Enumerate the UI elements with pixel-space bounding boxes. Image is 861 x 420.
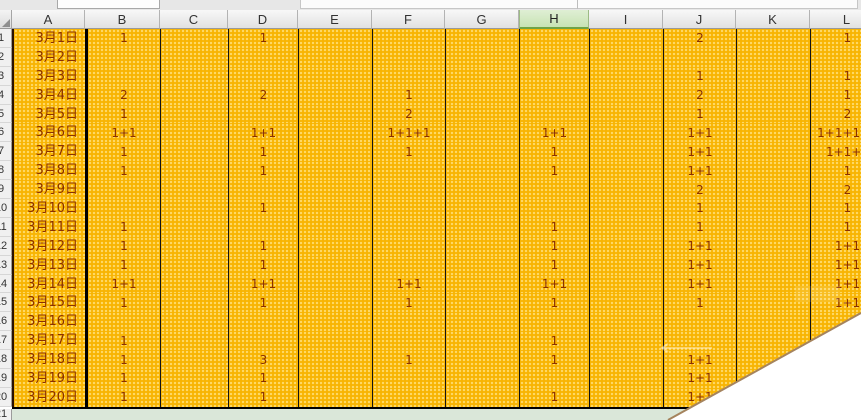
cell-E10[interactable] xyxy=(298,199,372,218)
cell-H1[interactable] xyxy=(519,29,589,48)
cell-I5[interactable] xyxy=(589,105,663,124)
cell-B1[interactable]: 1 xyxy=(85,29,160,48)
cell-G14[interactable] xyxy=(445,275,519,294)
sheet-row-12: 123月12日1111+11+1 xyxy=(0,237,861,256)
cell-L14[interactable]: 1+1 xyxy=(810,275,861,294)
sheet-row-7: 73月7日11111+11+1+1 xyxy=(0,142,861,161)
cell-G16[interactable] xyxy=(445,312,519,331)
cell-L2[interactable] xyxy=(810,48,861,67)
cell-E8[interactable] xyxy=(298,161,372,180)
cell-K8[interactable] xyxy=(736,161,810,180)
row-header-10[interactable]: 10 xyxy=(0,199,12,218)
cell-C10[interactable] xyxy=(160,199,228,218)
cell-L6[interactable]: 1+1+1+1 xyxy=(810,123,861,142)
cell-A11[interactable]: 3月11日 xyxy=(12,218,85,237)
sheet-row-14: 143月14日1+11+11+11+11+11+1 xyxy=(0,275,861,294)
cell-D18[interactable]: 3 xyxy=(228,350,298,369)
cell-G4[interactable] xyxy=(445,86,519,105)
cell-J14[interactable]: 1+1 xyxy=(663,275,736,294)
cell-G15[interactable] xyxy=(445,293,519,312)
cell-A12[interactable]: 3月12日 xyxy=(12,237,85,256)
cell-L18[interactable] xyxy=(810,350,861,369)
row-header-4[interactable]: 4 xyxy=(0,86,12,105)
cell-J1[interactable]: 2 xyxy=(663,29,736,48)
cell-K14[interactable] xyxy=(736,275,810,294)
sheet-row-11: 113月11日1111 xyxy=(0,218,861,237)
formula-bar-divider xyxy=(577,0,578,9)
cell-F13[interactable] xyxy=(372,256,445,275)
cell-I9[interactable] xyxy=(589,180,663,199)
cell-J17[interactable] xyxy=(663,331,736,350)
cell-I1[interactable] xyxy=(589,29,663,48)
cell-F12[interactable] xyxy=(372,237,445,256)
cell-L11[interactable]: 1 xyxy=(810,218,861,237)
row-header-20[interactable]: 20 xyxy=(0,388,12,407)
cell-J16[interactable] xyxy=(663,312,736,331)
cell-K3[interactable] xyxy=(736,67,810,86)
name-box[interactable] xyxy=(57,0,160,9)
cell-L12[interactable]: 1+1 xyxy=(810,237,861,256)
sheet-row-20: 203月20日1111+1 xyxy=(0,388,861,407)
cell-I2[interactable] xyxy=(589,48,663,67)
cell-L1[interactable]: 1 xyxy=(810,29,861,48)
cell-A8[interactable]: 3月8日 xyxy=(12,161,85,180)
cell-D15[interactable]: 1 xyxy=(228,293,298,312)
sheet-row-13: 133月13日1111+11+1 xyxy=(0,256,861,275)
sheet-row-6: 63月6日1+11+11+1+11+11+11+1+1+1 xyxy=(0,123,861,142)
cell-L10[interactable]: 1 xyxy=(810,199,861,218)
cell-L15[interactable]: 1+1 xyxy=(810,293,861,312)
cell-C17[interactable] xyxy=(160,331,228,350)
cell-C19[interactable] xyxy=(160,369,228,388)
cell-H6[interactable]: 1+1 xyxy=(519,123,589,142)
select-all-corner[interactable] xyxy=(0,10,12,29)
cell-I3[interactable] xyxy=(589,67,663,86)
cell-H19[interactable] xyxy=(519,369,589,388)
sheet-row-4: 43月4日22121 xyxy=(0,86,861,105)
cell-L20[interactable] xyxy=(810,388,861,407)
sheet-row-1: 13月1日1121 xyxy=(0,29,861,48)
column-header-D[interactable]: D xyxy=(228,10,298,29)
cell-D4[interactable]: 2 xyxy=(228,86,298,105)
column-header-K[interactable]: K xyxy=(736,10,810,29)
cell-A10[interactable]: 3月10日 xyxy=(12,199,85,218)
cell-I12[interactable] xyxy=(589,237,663,256)
cell-C4[interactable] xyxy=(160,86,228,105)
cell-C7[interactable] xyxy=(160,142,228,161)
row-header-12[interactable]: 12 xyxy=(0,237,12,256)
cell-H13[interactable]: 1 xyxy=(519,256,589,275)
cell-D8[interactable]: 1 xyxy=(228,161,298,180)
sheet-row-8: 83月8日1111+11 xyxy=(0,161,861,180)
cell-I10[interactable] xyxy=(589,199,663,218)
cell-I13[interactable] xyxy=(589,256,663,275)
cell-J12[interactable]: 1+1 xyxy=(663,237,736,256)
cell-C14[interactable] xyxy=(160,275,228,294)
cell-G10[interactable] xyxy=(445,199,519,218)
cell-H14[interactable]: 1+1 xyxy=(519,275,589,294)
cell-D2[interactable] xyxy=(228,48,298,67)
cell-L19[interactable] xyxy=(810,369,861,388)
cell-A3[interactable]: 3月3日 xyxy=(12,67,85,86)
cell-L8[interactable]: 1 xyxy=(810,161,861,180)
cell-H18[interactable]: 1 xyxy=(519,350,589,369)
cell-D11[interactable] xyxy=(228,218,298,237)
cell-K12[interactable] xyxy=(736,237,810,256)
cell-F4[interactable]: 1 xyxy=(372,86,445,105)
cell-J13[interactable]: 1+1 xyxy=(663,256,736,275)
cell-F14[interactable]: 1+1 xyxy=(372,275,445,294)
cell-D17[interactable] xyxy=(228,331,298,350)
cell-G7[interactable] xyxy=(445,142,519,161)
cell-C9[interactable] xyxy=(160,180,228,199)
sheet-row-9: 93月9日22 xyxy=(0,180,861,199)
cell-H12[interactable]: 1 xyxy=(519,237,589,256)
cell-D3[interactable] xyxy=(228,67,298,86)
cell-E20[interactable] xyxy=(298,388,372,407)
cell-B11[interactable]: 1 xyxy=(85,218,160,237)
cell-J6[interactable]: 1+1 xyxy=(663,123,736,142)
cell-I17[interactable] xyxy=(589,331,663,350)
cell-K6[interactable] xyxy=(736,123,810,142)
cell-C15[interactable] xyxy=(160,293,228,312)
cell-J20[interactable]: 1+1 xyxy=(663,388,736,407)
cell-L3[interactable]: 1 xyxy=(810,67,861,86)
cell-E2[interactable] xyxy=(298,48,372,67)
cell-A19[interactable]: 3月19日 xyxy=(12,369,85,388)
cell-B4[interactable]: 2 xyxy=(85,86,160,105)
cell-I18[interactable] xyxy=(589,350,663,369)
row-header-9[interactable]: 9 xyxy=(0,180,12,199)
cell-E19[interactable] xyxy=(298,369,372,388)
cell-H2[interactable] xyxy=(519,48,589,67)
cell-C1[interactable] xyxy=(160,29,228,48)
cell-E13[interactable] xyxy=(298,256,372,275)
cell-G13[interactable] xyxy=(445,256,519,275)
cell-H4[interactable] xyxy=(519,86,589,105)
cell-K13[interactable] xyxy=(736,256,810,275)
cell-G9[interactable] xyxy=(445,180,519,199)
cell-J19[interactable]: 1+1 xyxy=(663,369,736,388)
cell-C18[interactable] xyxy=(160,350,228,369)
row-header-19[interactable]: 19 xyxy=(0,369,12,388)
sheet-row-2: 23月2日 xyxy=(0,48,861,67)
cell-D10[interactable]: 1 xyxy=(228,199,298,218)
cell-B17[interactable]: 1 xyxy=(85,331,160,350)
cell-E14[interactable] xyxy=(298,275,372,294)
cell-B10[interactable] xyxy=(85,199,160,218)
row-header-1[interactable]: 1 xyxy=(0,29,12,48)
cell-A17[interactable]: 3月17日 xyxy=(12,331,85,350)
cell-K20[interactable] xyxy=(736,388,810,407)
cell-C20[interactable] xyxy=(160,388,228,407)
cell-B20[interactable]: 1 xyxy=(85,388,160,407)
cell-K1[interactable] xyxy=(736,29,810,48)
column-header-C[interactable]: C xyxy=(160,10,228,29)
cell-G2[interactable] xyxy=(445,48,519,67)
cell-G12[interactable] xyxy=(445,237,519,256)
cell-G19[interactable] xyxy=(445,369,519,388)
cell-K18[interactable] xyxy=(736,350,810,369)
cell-A2[interactable]: 3月2日 xyxy=(12,48,85,67)
cell-D19[interactable]: 1 xyxy=(228,369,298,388)
cell-B7[interactable]: 1 xyxy=(85,142,160,161)
cell-A5[interactable]: 3月5日 xyxy=(12,105,85,124)
sheet-grid: 13月1日112123月2日33月3日1143月4日2212153月5日1212… xyxy=(0,29,861,407)
cell-B9[interactable] xyxy=(85,180,160,199)
cell-J10[interactable]: 1 xyxy=(663,199,736,218)
cell-D6[interactable]: 1+1 xyxy=(228,123,298,142)
cell-K11[interactable] xyxy=(736,218,810,237)
cell-I14[interactable] xyxy=(589,275,663,294)
cell-E17[interactable] xyxy=(298,331,372,350)
cell-B6[interactable]: 1+1 xyxy=(85,123,160,142)
sheet-row-5: 53月5日1212 xyxy=(0,105,861,124)
column-header-I[interactable]: I xyxy=(589,10,663,29)
cell-H11[interactable]: 1 xyxy=(519,218,589,237)
row-header-3[interactable]: 3 xyxy=(0,67,12,86)
cell-A4[interactable]: 3月4日 xyxy=(12,86,85,105)
cell-H20[interactable]: 1 xyxy=(519,388,589,407)
cell-H15[interactable]: 1 xyxy=(519,293,589,312)
cell-I19[interactable] xyxy=(589,369,663,388)
cell-G11[interactable] xyxy=(445,218,519,237)
cell-D16[interactable] xyxy=(228,312,298,331)
row-header-8[interactable]: 8 xyxy=(0,161,12,180)
row-header-15[interactable]: 15 xyxy=(0,293,12,312)
select-all-triangle-icon xyxy=(2,19,10,27)
row-header-18[interactable]: 18 xyxy=(0,350,12,369)
cell-A6[interactable]: 3月6日 xyxy=(12,123,85,142)
cell-L4[interactable]: 1 xyxy=(810,86,861,105)
row-header-14[interactable]: 14 xyxy=(0,275,12,294)
cell-E15[interactable] xyxy=(298,293,372,312)
cell-D5[interactable] xyxy=(228,105,298,124)
cell-J3[interactable]: 1 xyxy=(663,67,736,86)
cell-K4[interactable] xyxy=(736,86,810,105)
cell-I16[interactable] xyxy=(589,312,663,331)
cell-A14[interactable]: 3月14日 xyxy=(12,275,85,294)
cell-J4[interactable]: 2 xyxy=(663,86,736,105)
cell-F18[interactable]: 1 xyxy=(372,350,445,369)
cell-G1[interactable] xyxy=(445,29,519,48)
row-header-7[interactable]: 7 xyxy=(0,142,12,161)
cell-E5[interactable] xyxy=(298,105,372,124)
cell-I4[interactable] xyxy=(589,86,663,105)
cell-B12[interactable]: 1 xyxy=(85,237,160,256)
cell-C12[interactable] xyxy=(160,237,228,256)
cell-A15[interactable]: 3月15日 xyxy=(12,293,85,312)
cell-B13[interactable]: 1 xyxy=(85,256,160,275)
cell-G3[interactable] xyxy=(445,67,519,86)
sheet-row-16: 163月16日 xyxy=(0,312,861,331)
cell-C6[interactable] xyxy=(160,123,228,142)
cell-D7[interactable]: 1 xyxy=(228,142,298,161)
cell-A18[interactable]: 3月18日 xyxy=(12,350,85,369)
cell-L5[interactable]: 2 xyxy=(810,105,861,124)
cell-L16[interactable] xyxy=(810,312,861,331)
formula-bar-strip xyxy=(0,0,861,10)
cell-H16[interactable] xyxy=(519,312,589,331)
cell-K10[interactable] xyxy=(736,199,810,218)
cell-B15[interactable]: 1 xyxy=(85,293,160,312)
column-header-F[interactable]: F xyxy=(372,10,445,29)
cell-H9[interactable] xyxy=(519,180,589,199)
cell-J5[interactable]: 1 xyxy=(663,105,736,124)
cell-H7[interactable]: 1 xyxy=(519,142,589,161)
row-header-16[interactable]: 16 xyxy=(0,312,12,331)
cell-J7[interactable]: 1+1 xyxy=(663,142,736,161)
cell-B3[interactable] xyxy=(85,67,160,86)
cell-A1[interactable]: 3月1日 xyxy=(12,29,85,48)
row-header-2[interactable]: 2 xyxy=(0,48,12,67)
column-header-G[interactable]: G xyxy=(445,10,519,29)
cell-K16[interactable] xyxy=(736,312,810,331)
cell-J2[interactable] xyxy=(663,48,736,67)
cell-L7[interactable]: 1+1+1 xyxy=(810,142,861,161)
cell-F8[interactable] xyxy=(372,161,445,180)
cell-B8[interactable]: 1 xyxy=(85,161,160,180)
row-header-5[interactable]: 5 xyxy=(0,105,12,124)
cell-G18[interactable] xyxy=(445,350,519,369)
cell-G20[interactable] xyxy=(445,388,519,407)
cell-I6[interactable] xyxy=(589,123,663,142)
sheet-row-10: 103月10日111 xyxy=(0,199,861,218)
cell-C2[interactable] xyxy=(160,48,228,67)
sheet-row-19: 193月19日111+1 xyxy=(0,369,861,388)
cell-K5[interactable] xyxy=(736,105,810,124)
cell-F7[interactable]: 1 xyxy=(372,142,445,161)
column-header-A[interactable]: A xyxy=(12,10,85,29)
cell-K15[interactable] xyxy=(736,293,810,312)
cell-L9[interactable]: 2 xyxy=(810,180,861,199)
cell-D14[interactable]: 1+1 xyxy=(228,275,298,294)
cell-A9[interactable]: 3月9日 xyxy=(12,180,85,199)
cell-H3[interactable] xyxy=(519,67,589,86)
row-header-13[interactable]: 13 xyxy=(0,256,12,275)
cell-I15[interactable] xyxy=(589,293,663,312)
cell-F15[interactable]: 1 xyxy=(372,293,445,312)
cell-C16[interactable] xyxy=(160,312,228,331)
cell-J9[interactable]: 2 xyxy=(663,180,736,199)
cell-G5[interactable] xyxy=(445,105,519,124)
cell-K19[interactable] xyxy=(736,369,810,388)
cell-I11[interactable] xyxy=(589,218,663,237)
cell-C5[interactable] xyxy=(160,105,228,124)
row-header-21[interactable]: 21 xyxy=(0,409,12,420)
cell-A20[interactable]: 3月20日 xyxy=(12,388,85,407)
cell-B2[interactable] xyxy=(85,48,160,67)
cell-G17[interactable] xyxy=(445,331,519,350)
cell-F6[interactable]: 1+1+1 xyxy=(372,123,445,142)
cell-A13[interactable]: 3月13日 xyxy=(12,256,85,275)
cell-K2[interactable] xyxy=(736,48,810,67)
cell-H8[interactable]: 1 xyxy=(519,161,589,180)
cell-H5[interactable] xyxy=(519,105,589,124)
cell-L13[interactable]: 1+1 xyxy=(810,256,861,275)
cell-F19[interactable] xyxy=(372,369,445,388)
cell-K17[interactable] xyxy=(736,331,810,350)
cell-F1[interactable] xyxy=(372,29,445,48)
cell-H10[interactable] xyxy=(519,199,589,218)
cell-C8[interactable] xyxy=(160,161,228,180)
row-header-11[interactable]: 11 xyxy=(0,218,12,237)
cell-I7[interactable] xyxy=(589,142,663,161)
cell-E16[interactable] xyxy=(298,312,372,331)
cell-B18[interactable]: 1 xyxy=(85,350,160,369)
cell-F2[interactable] xyxy=(372,48,445,67)
cell-K7[interactable] xyxy=(736,142,810,161)
cell-E9[interactable] xyxy=(298,180,372,199)
cell-L17[interactable] xyxy=(810,331,861,350)
cell-F17[interactable] xyxy=(372,331,445,350)
cell-D13[interactable]: 1 xyxy=(228,256,298,275)
cell-I8[interactable] xyxy=(589,161,663,180)
cell-E1[interactable] xyxy=(298,29,372,48)
cell-G6[interactable] xyxy=(445,123,519,142)
cell-C11[interactable] xyxy=(160,218,228,237)
cell-J11[interactable]: 1 xyxy=(663,218,736,237)
cell-E18[interactable] xyxy=(298,350,372,369)
cell-F9[interactable] xyxy=(372,180,445,199)
cell-E7[interactable] xyxy=(298,142,372,161)
cell-E3[interactable] xyxy=(298,67,372,86)
cell-E11[interactable] xyxy=(298,218,372,237)
formula-bar-input[interactable] xyxy=(300,0,858,9)
cell-D12[interactable]: 1 xyxy=(228,237,298,256)
cell-K9[interactable] xyxy=(736,180,810,199)
column-header-L[interactable]: L xyxy=(810,10,861,29)
column-header-B[interactable]: B xyxy=(85,10,160,29)
cell-J8[interactable]: 1+1 xyxy=(663,161,736,180)
cell-F11[interactable] xyxy=(372,218,445,237)
cell-A7[interactable]: 3月7日 xyxy=(12,142,85,161)
cell-A16[interactable]: 3月16日 xyxy=(12,312,85,331)
cell-D20[interactable]: 1 xyxy=(228,388,298,407)
row-header-6[interactable]: 6 xyxy=(0,123,12,142)
cell-B19[interactable]: 1 xyxy=(85,369,160,388)
column-header-row: ABCDEFGHIJKL xyxy=(0,10,861,29)
summary-row-green[interactable] xyxy=(12,409,861,420)
cell-F3[interactable] xyxy=(372,67,445,86)
cell-B5[interactable]: 1 xyxy=(85,105,160,124)
sheet-row-17: 173月17日11 xyxy=(0,331,861,350)
column-header-J[interactable]: J xyxy=(663,10,736,29)
cell-F5[interactable]: 2 xyxy=(372,105,445,124)
cell-H17[interactable]: 1 xyxy=(519,331,589,350)
cell-E4[interactable] xyxy=(298,86,372,105)
column-header-H[interactable]: H xyxy=(519,10,589,29)
cell-F16[interactable] xyxy=(372,312,445,331)
cell-B14[interactable]: 1+1 xyxy=(85,275,160,294)
row-header-17[interactable]: 17 xyxy=(0,331,12,350)
column-header-E[interactable]: E xyxy=(298,10,372,29)
cell-E6[interactable] xyxy=(298,123,372,142)
cell-C13[interactable] xyxy=(160,256,228,275)
cell-B16[interactable] xyxy=(85,312,160,331)
cell-I20[interactable] xyxy=(589,388,663,407)
cell-J15[interactable]: 1 xyxy=(663,293,736,312)
cell-F10[interactable] xyxy=(372,199,445,218)
cell-F20[interactable] xyxy=(372,388,445,407)
cell-D1[interactable]: 1 xyxy=(228,29,298,48)
cell-C3[interactable] xyxy=(160,67,228,86)
cell-D9[interactable] xyxy=(228,180,298,199)
cell-E12[interactable] xyxy=(298,237,372,256)
spreadsheet-window: ABCDEFGHIJKL 13月1日112123月2日33月3日1143月4日2… xyxy=(0,0,861,420)
cell-G8[interactable] xyxy=(445,161,519,180)
cell-J18[interactable]: 1+1 xyxy=(663,350,736,369)
